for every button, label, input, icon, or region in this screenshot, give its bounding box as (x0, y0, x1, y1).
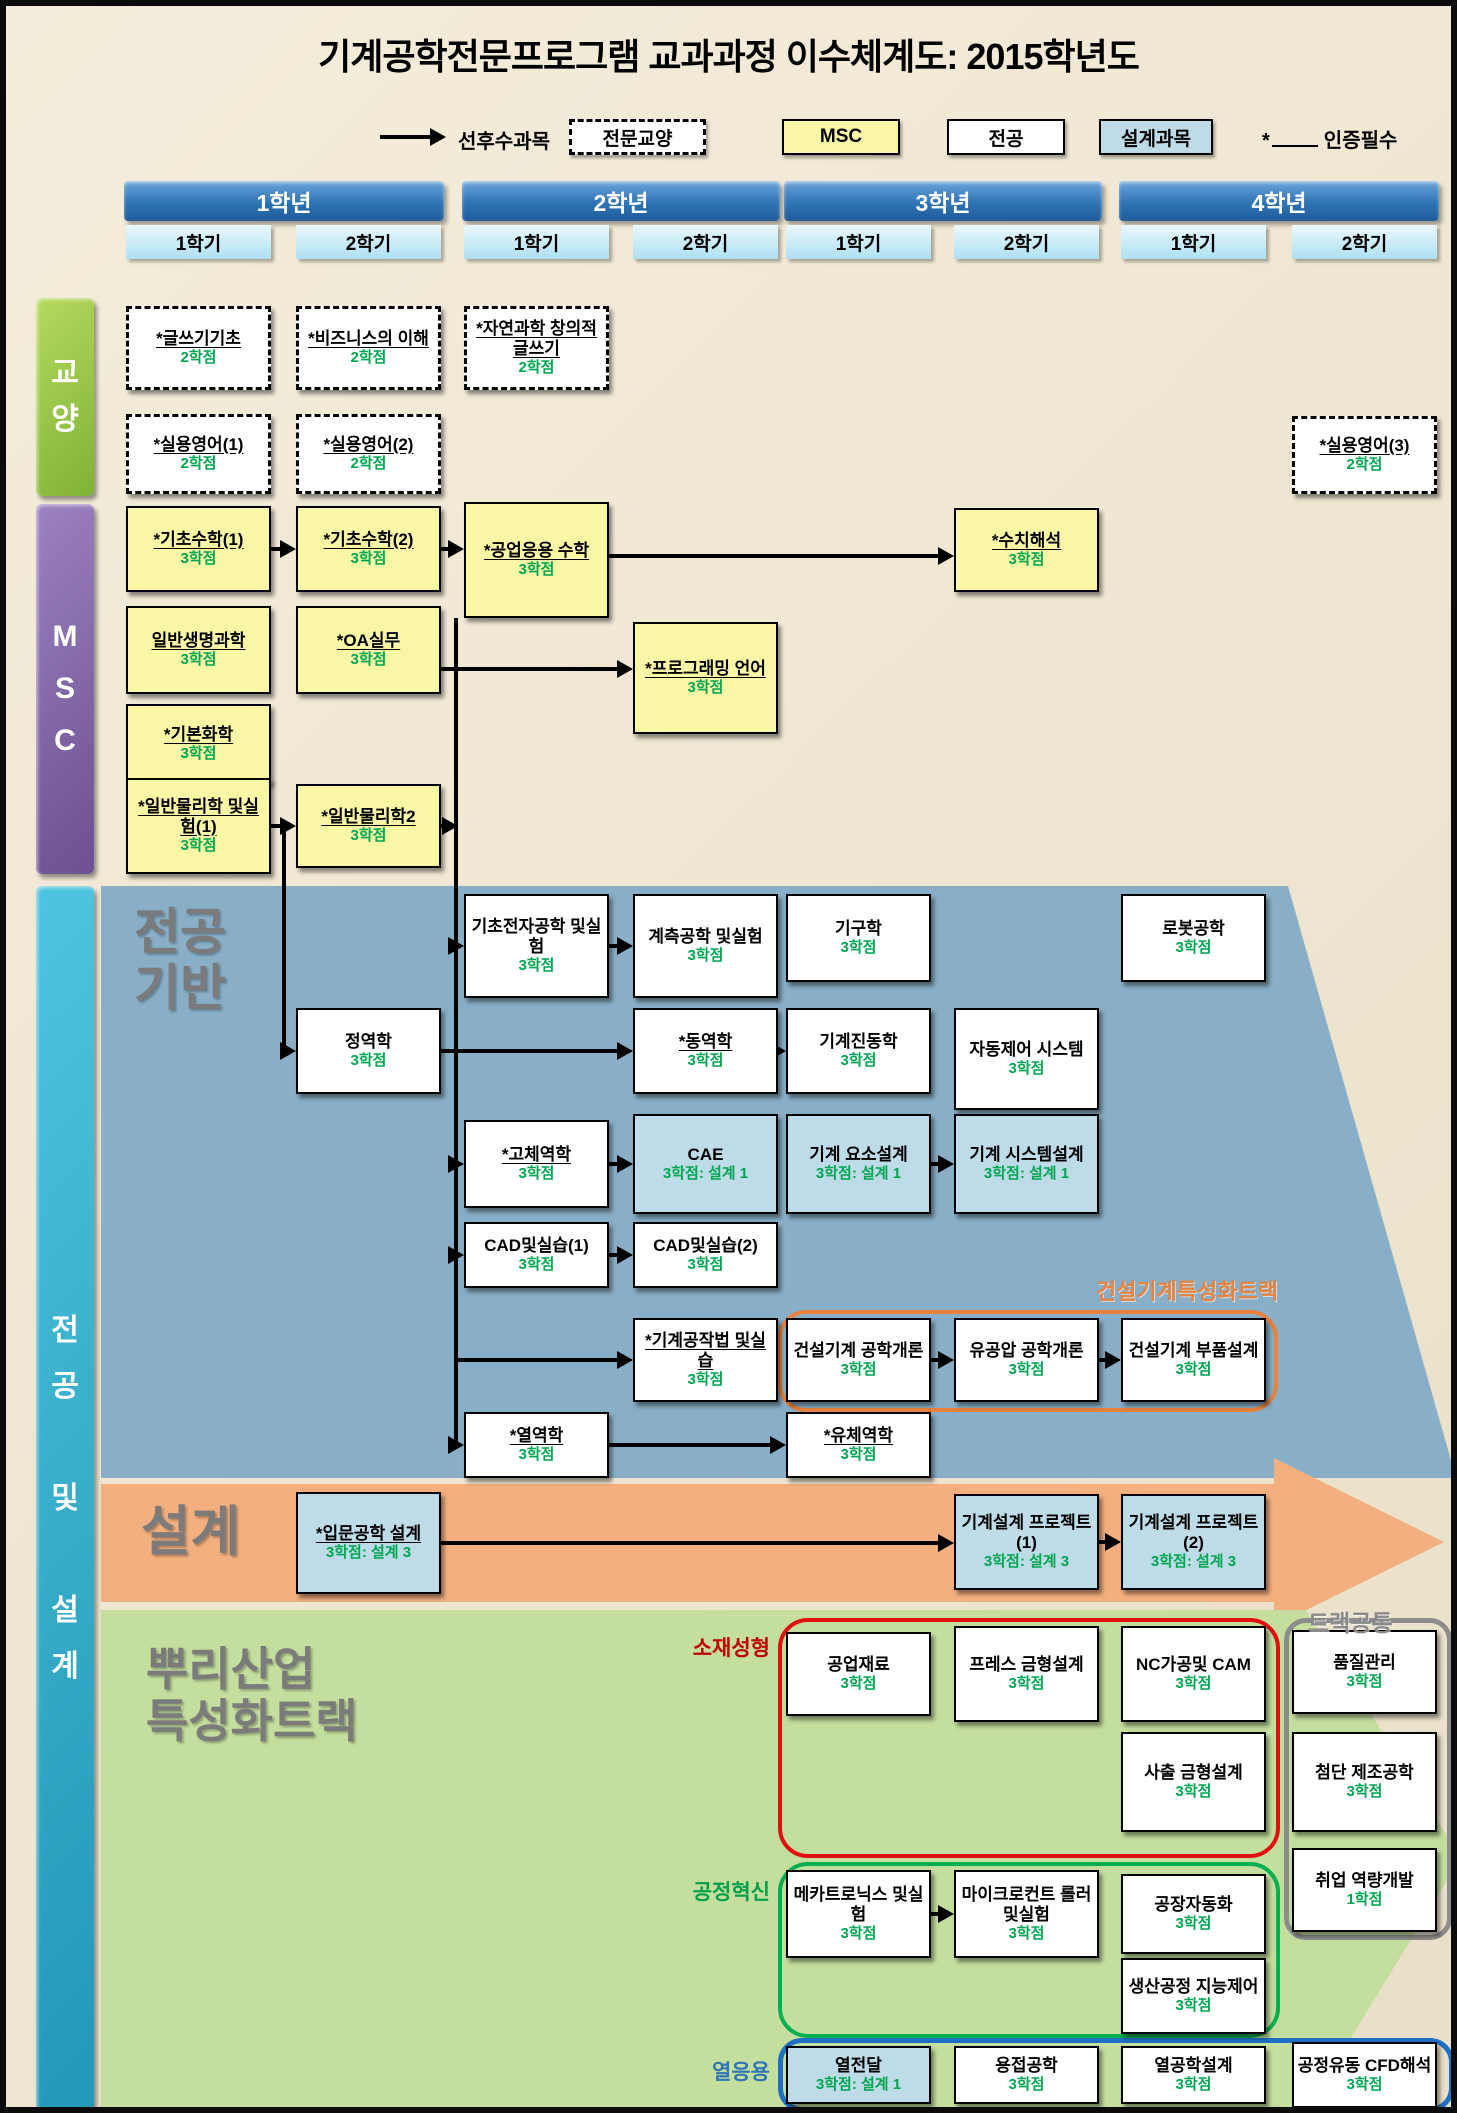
year-header-4: 4학년 (1119, 181, 1439, 221)
course-nccam: NC가공및 CAM3학점 (1121, 1626, 1266, 1722)
prereq-arrow-line (456, 1358, 617, 1362)
prereq-arrow-line (441, 1049, 617, 1053)
legend-msc-box: MSC (782, 119, 900, 155)
course-english3: *실용영어(3)2학점 (1292, 416, 1437, 494)
sidebar-char: 공 (51, 1372, 79, 1402)
course-constintro: 건설기계 공학개론3학점 (786, 1318, 931, 1402)
arrowhead-icon (617, 1351, 633, 1369)
prereq-arrow-line (609, 1162, 617, 1166)
prereq-arrow-line (931, 1358, 938, 1362)
arrowhead-icon (617, 1155, 633, 1173)
sidebar-char: S (55, 674, 75, 704)
course-sciwriting: *자연과학 창의적글쓰기2학점 (464, 306, 609, 390)
arrowhead-icon (1105, 1533, 1121, 1551)
sidebar-char: C (54, 726, 76, 756)
arrowhead-icon (938, 1905, 954, 1923)
prereq-arrow-line (609, 554, 938, 558)
course-oa: *OA실무3학점 (296, 606, 441, 694)
course-hydraulics: 유공압 공학개론3학점 (954, 1318, 1099, 1402)
page-title: 기계공학전문프로그램 교과과정 이수체계도: 2015학년도 (6, 28, 1451, 80)
course-cad1: CAD및실습(1)3학점 (464, 1222, 609, 1288)
year-header-1: 1학년 (124, 181, 444, 221)
semester-1-1: 1학기 (126, 225, 271, 259)
arrowhead-icon (617, 1246, 633, 1264)
course-materials: 공업재료3학점 (786, 1632, 931, 1716)
course-micro: 마이크로컨트 롤러및실험3학점 (954, 1870, 1099, 1958)
course-fluid: *유체역학3학점 (786, 1412, 931, 1478)
course-biology: 일반생명과학3학점 (126, 606, 271, 694)
course-statics: 정역학3학점 (296, 1008, 441, 1094)
label-thermal-application: 열응용 (654, 2056, 770, 2086)
arrowhead-icon (448, 1155, 464, 1173)
course-chemistry: *기본화학3학점 (126, 704, 271, 784)
legend-major-box: 전공 (947, 119, 1065, 155)
semester-2-1: 1학기 (464, 225, 609, 259)
underline-sample (1272, 133, 1318, 147)
course-instrumentation: 계측공학 및실험3학점 (633, 894, 778, 998)
label-major-base: 전공기반 (134, 904, 226, 1016)
sidebar-general-education: 교양 (36, 298, 94, 496)
course-dynamics: *동역학3학점 (633, 1008, 778, 1094)
arrowhead-icon (938, 547, 954, 565)
label-process-innovation: 공정혁신 (646, 1876, 770, 1906)
course-mechatronics: 메카트로닉스 및실험3학점 (786, 1870, 931, 1958)
sidebar-char: 및 (51, 1484, 79, 1514)
arrowhead-icon (442, 817, 458, 835)
sidebar-char: 양 (51, 405, 79, 435)
course-production: 생산공정 지능제어3학점 (1121, 1958, 1266, 2034)
semester-2-2: 2학기 (633, 225, 778, 259)
course-element: 기계 요소설계3학점: 설계 1 (786, 1114, 931, 1214)
prereq-arrow-line (609, 1443, 772, 1447)
year-header-3: 3학년 (784, 181, 1102, 221)
course-solid: *고체역학3학점 (464, 1120, 609, 1208)
prereq-arrow-line (609, 944, 617, 948)
course-thermaldesign: 열공학설계3학점 (1121, 2046, 1266, 2104)
arrowhead-icon (617, 937, 633, 955)
arrowhead-icon (617, 660, 633, 678)
course-english2: *실용영어(2)2학점 (296, 414, 441, 494)
arrowhead-icon (448, 1246, 464, 1264)
semester-1-2: 2학기 (296, 225, 441, 259)
course-kinematics: 기구학3학점 (786, 894, 931, 982)
arrowhead-icon (1105, 1351, 1121, 1369)
course-programming: *프로그래밍 언어3학점 (633, 622, 778, 734)
arrowhead-icon (448, 937, 464, 955)
label-root-track: 뿌리산업특성화트랙 (146, 1644, 358, 1747)
course-constparts: 건설기계 부품설계3학점 (1121, 1318, 1266, 1402)
arrowhead-icon (617, 1042, 633, 1060)
label-material-forming: 소재성형 (646, 1632, 770, 1662)
prereq-arrow-line (282, 826, 286, 1053)
arrowhead-icon (938, 1351, 954, 1369)
prereq-arrow-line (609, 1253, 617, 1257)
course-physics2: *일반물리학23학점 (296, 784, 441, 868)
arrowhead-icon (448, 540, 464, 558)
prereq-arrow-line (441, 1541, 938, 1545)
year-header-2: 2학년 (462, 181, 780, 221)
sidebar-char: 계 (51, 1652, 79, 1682)
course-project2: 기계설계 프로젝트(2)3학점: 설계 3 (1121, 1494, 1266, 1590)
prereq-arrow-line (931, 1162, 938, 1166)
design-band-arrowhead (1274, 1458, 1444, 1626)
course-autocontrol: 자동제어 시스템3학점 (954, 1008, 1099, 1110)
arrowhead-icon (938, 1155, 954, 1173)
course-electronics: 기초전자공학 및실험3학점 (464, 894, 609, 998)
sidebar-major-design: 전공및설계 (36, 886, 94, 2111)
prereq-arrow-line (931, 1912, 938, 1916)
course-cfd: 공정유동 CFD해석3학점 (1292, 2042, 1437, 2108)
course-english1: *실용영어(1)2학점 (126, 414, 271, 494)
course-manufacturing: *기계공작법 및실습3학점 (633, 1318, 778, 1402)
course-math2: *기초수학(2)3학점 (296, 506, 441, 592)
arrowhead-icon (280, 540, 296, 558)
sidebar-char: 교 (51, 359, 79, 389)
course-career: 취업 역량개발1학점 (1292, 1848, 1437, 1932)
course-writing: *글쓰기기초2학점 (126, 306, 271, 390)
course-thermo: *열역학3학점 (464, 1412, 609, 1478)
semester-4-1: 1학기 (1121, 225, 1266, 259)
course-business: *비즈니스의 이해2학점 (296, 306, 441, 390)
course-welding: 용접공학3학점 (954, 2046, 1099, 2104)
prereq-arrow-line (380, 135, 430, 139)
course-injection: 사출 금형설계3학점 (1121, 1732, 1266, 1832)
label-track-common: 트랙공통 (1308, 1604, 1457, 1638)
arrowhead-icon (938, 1534, 954, 1552)
course-physics1: *일반물리학 및실험(1)3학점 (126, 778, 271, 874)
course-numanalysis: *수치해석3학점 (954, 508, 1099, 592)
label-design: 설계 (141, 1502, 240, 1562)
curriculum-flowchart: 기계공학전문프로그램 교과과정 이수체계도: 2015학년도 선후수과목 전문교… (0, 0, 1457, 2113)
course-factoryauto: 공장자동화3학점 (1121, 1874, 1266, 1954)
arrowhead-icon (770, 1436, 786, 1454)
legend-prereq-label: 선후수과목 (458, 125, 550, 154)
sidebar-char: 전 (51, 1316, 79, 1346)
semester-3-2: 2학기 (954, 225, 1099, 259)
course-advman: 첨단 제조공학3학점 (1292, 1732, 1437, 1832)
semester-4-2: 2학기 (1292, 225, 1437, 259)
semester-3-1: 1학기 (786, 225, 931, 259)
course-vibration: 기계진동학3학점 (786, 1008, 931, 1094)
prereq-arrow-line (441, 667, 617, 671)
arrowhead-icon (280, 1042, 296, 1060)
course-quality: 품질관리3학점 (1292, 1630, 1437, 1714)
course-math1: *기초수학(1)3학점 (126, 506, 271, 592)
sidebar-char: M (53, 622, 78, 652)
arrowhead-icon (280, 817, 296, 835)
arrowhead-icon (448, 1436, 464, 1454)
course-heattransfer: 열전달3학점: 설계 1 (786, 2046, 931, 2104)
course-press: 프레스 금형설계3학점 (954, 1626, 1099, 1722)
course-system: 기계 시스템설계3학점: 설계 1 (954, 1114, 1099, 1214)
course-robotics: 로봇공학3학점 (1121, 894, 1266, 982)
course-cae: CAE3학점: 설계 1 (633, 1114, 778, 1214)
course-cad2: CAD및실습(2)3학점 (633, 1222, 778, 1288)
legend-required-label: *인증필수 (1262, 124, 1397, 153)
course-project1: 기계설계 프로젝트(1)3학점: 설계 3 (954, 1494, 1099, 1590)
arrowhead-icon (430, 128, 446, 146)
label-construction-track: 건설기계특성화트랙 (1001, 1274, 1278, 1306)
sidebar-msc: MSC (36, 504, 94, 874)
sidebar-char: 설 (51, 1596, 79, 1626)
course-engmath: *공업응용 수학3학점 (464, 502, 609, 618)
prereq-arrow-line (454, 618, 458, 1447)
legend-design-box: 설계과목 (1099, 119, 1213, 155)
course-introdesign: *입문공학 설계3학점: 설계 3 (296, 1492, 441, 1594)
legend-ge-box: 전문교양 (569, 119, 706, 155)
